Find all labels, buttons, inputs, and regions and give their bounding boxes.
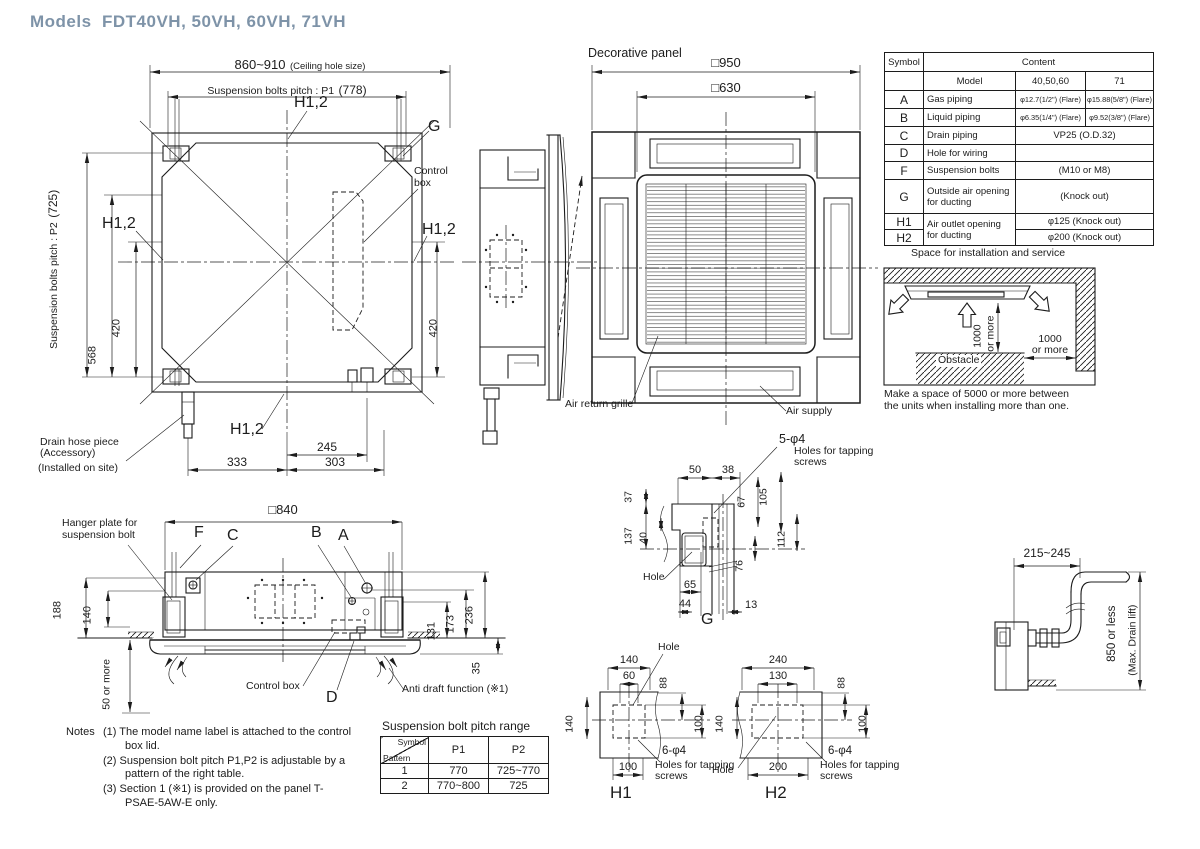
drawing-sheet: Models FDT40VH, 50VH, 60VH, 71VH 860~910…	[0, 0, 1200, 849]
spec-air-outlet-label: Air outlet opening for ducting	[924, 214, 1016, 246]
spec-table: SymbolContent Model40,50,6071 AGas pipin…	[884, 52, 1154, 246]
label-h2-detail: H2	[765, 783, 787, 802]
label-h12-bottom: H1,2	[230, 421, 264, 439]
dim-g-40: 40	[638, 532, 650, 544]
table-row: FSuspension bolts(M10 or M8)	[885, 162, 1154, 180]
dim-h2-100-right: 100	[857, 715, 869, 733]
dim-ceiling-hole: 860~910 (Ceiling hole size)	[235, 56, 366, 74]
label-hole-h1: Hole	[658, 642, 680, 654]
dim-236: 236	[464, 606, 476, 624]
label-h12-right: H1,2	[422, 221, 456, 239]
dim-1000-vert-note: or more	[985, 316, 997, 352]
table-row: 2 770~800 725	[381, 779, 549, 794]
dim-g-38: 38	[722, 464, 734, 476]
dim-h2-130: 130	[769, 670, 787, 682]
label-holes-note-h2: Holes for tapping screws	[820, 760, 905, 782]
note-item: (1) The model name label is attached to …	[103, 726, 355, 754]
spec-header-model: Model	[924, 72, 1016, 91]
label-air-return-grille: Air return grille	[565, 399, 633, 411]
airflow-arrow-icon	[1026, 288, 1055, 317]
label-air-supply: Air supply	[786, 406, 832, 418]
dim-245: 245	[317, 441, 337, 454]
dim-g-37: 37	[623, 491, 635, 503]
dim-p1: Suspension bolts pitch : P1 (778)	[207, 81, 366, 99]
dim-50-or-more: 50 or more	[101, 659, 113, 710]
dim-g-137: 137	[623, 527, 635, 545]
pitch-table-title: Suspension bolt pitch range	[382, 720, 530, 733]
notes-heading: Notes	[66, 726, 95, 738]
label-anti-draft: Anti draft function (※1)	[402, 684, 508, 696]
dim-h1-60: 60	[623, 670, 635, 682]
label-holes-note-g: Holes for tapping screws	[794, 446, 886, 468]
dim-568: 568	[87, 346, 99, 364]
airflow-arrow-icon	[959, 303, 976, 327]
label-decorative-panel: Decorative panel	[588, 46, 682, 60]
dim-1000-horiz-note: or more	[1032, 345, 1068, 357]
dim-h1-100-bottom: 100	[619, 761, 637, 773]
label-control-box-section: Control box	[246, 681, 300, 693]
dim-131: 131	[426, 622, 438, 640]
label-drain-accessory: (Accessory)	[40, 448, 95, 460]
dim-g-13: 13	[745, 599, 757, 611]
label-g-plan: G	[428, 118, 440, 136]
dim-140-section: 140	[82, 606, 94, 624]
label-5-holes: 5-φ4	[779, 432, 805, 446]
dim-h1-100-right: 100	[693, 715, 705, 733]
dim-h1-140-top: 140	[620, 654, 638, 666]
table-row: BLiquid pipingφ6.35(1/4") (Flare)φ9.52(3…	[885, 109, 1154, 127]
dim-420-left: 420	[111, 319, 123, 337]
note-item: (3) Section 1 (※1) is provided on the pa…	[103, 783, 355, 811]
dim-h2-200: 200	[769, 761, 787, 773]
dim-420-right: 420	[428, 319, 440, 337]
spec-header-content: Content	[924, 53, 1154, 72]
notes-list: (1) The model name label is attached to …	[103, 726, 355, 812]
note-item: (2) Suspension bolt pitch P1,P2 is adjus…	[103, 755, 355, 783]
pitch-table: Symbol Pattern P1 P2 1 770 725~770 2 770…	[380, 736, 549, 794]
dim-h2-240: 240	[769, 654, 787, 666]
table-row: GOutside air opening for ducting(Knock o…	[885, 180, 1154, 214]
label-drain-installed: (Installed on site)	[38, 463, 118, 475]
label-h1-detail: H1	[610, 783, 632, 802]
label-a: A	[338, 527, 349, 545]
label-hole-h2: Hole	[712, 765, 734, 777]
label-hanger-plate: Hanger plate for suspension bolt	[62, 518, 174, 542]
table-row: DHole for wiring	[885, 145, 1154, 162]
dim-g-112: 112	[776, 531, 788, 548]
dim-188: 188	[52, 601, 64, 619]
label-obstacle: Obstacle	[936, 355, 981, 367]
label-c: C	[227, 527, 239, 545]
airflow-arrow-icon	[883, 291, 912, 320]
decorative-panel-drawing	[576, 65, 878, 428]
plan-view-drawing	[82, 65, 455, 476]
label-d: D	[326, 689, 338, 707]
dim-173: 173	[445, 615, 457, 633]
install-caption: Make a space of 5000 or more between the…	[884, 389, 1082, 413]
dim-g-76: 76	[734, 560, 746, 572]
dim-h2-88: 88	[836, 677, 848, 689]
pitch-header-diagonal: Symbol Pattern	[381, 737, 429, 764]
dim-g-67: 67	[736, 496, 748, 508]
dim-g-44: 44	[679, 598, 691, 610]
table-row: 1 770 725~770	[381, 764, 549, 779]
table-row: H1Air outlet opening for ductingφ125 (Kn…	[885, 214, 1154, 230]
label-6-holes-h1: 6-φ4	[662, 745, 686, 758]
label-6-holes-h2: 6-φ4	[828, 745, 852, 758]
dim-215-245: 215~245	[1023, 547, 1070, 560]
dim-950: □950	[711, 56, 741, 71]
label-g-detail: G	[701, 611, 713, 629]
table-row: CDrain pipingVP25 (O.D.32)	[885, 127, 1154, 145]
dim-303: 303	[325, 456, 345, 469]
label-b: B	[311, 524, 322, 542]
dim-35: 35	[471, 662, 483, 674]
dim-333: 333	[227, 456, 247, 469]
dim-h1-140-left: 140	[564, 715, 576, 733]
spec-header-symbol: Symbol	[885, 53, 924, 72]
dim-630: □630	[711, 81, 741, 96]
label-h12-left: H1,2	[102, 215, 136, 233]
dim-850-or-less: 850 or less	[1106, 606, 1119, 662]
label-f: F	[194, 524, 204, 542]
label-control-box-plan: Control box	[414, 166, 466, 190]
dim-840: □840	[268, 503, 298, 518]
spec-header-models-b: 71	[1086, 72, 1154, 91]
dim-h2-140-left: 140	[714, 715, 726, 733]
dim-1000-vert: 1000	[972, 324, 984, 347]
label-install-title: Space for installation and service	[911, 248, 1065, 260]
dim-g-65: 65	[684, 579, 696, 591]
drain-lift-drawing	[995, 558, 1146, 690]
table-row: AGas pipingφ12.7(1/2") (Flare)φ15.88(5/8…	[885, 91, 1154, 109]
dim-g-50: 50	[689, 464, 701, 476]
spec-header-models-a: 40,50,60	[1016, 72, 1086, 91]
label-hole-g: Hole	[643, 572, 665, 584]
label-max-drain-lift: (Max. Drain lift)	[1127, 605, 1139, 676]
dim-g-105: 105	[758, 488, 770, 506]
page-title: Models FDT40VH, 50VH, 60VH, 71VH	[30, 12, 346, 31]
dim-h1-88: 88	[658, 677, 670, 689]
dim-p2: Suspension bolts pitch : P2 (725)	[44, 190, 62, 349]
label-h12-top: H1,2	[294, 94, 328, 112]
